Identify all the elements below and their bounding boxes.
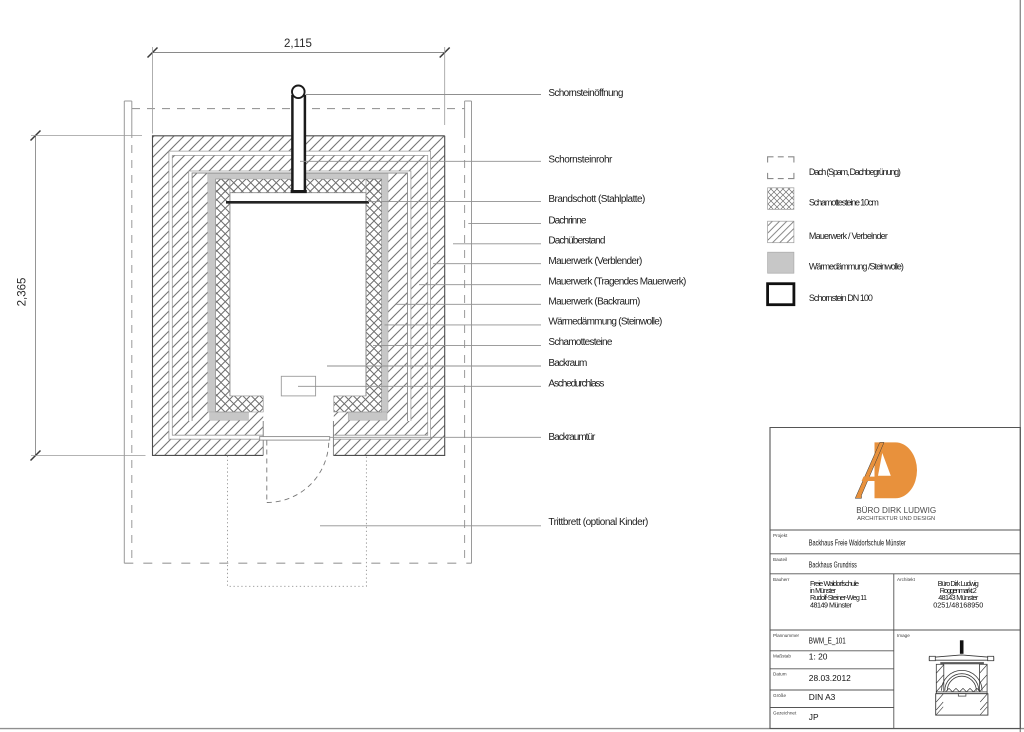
svg-text:Schornstein DN 100: Schornstein DN 100 — [809, 293, 873, 303]
svg-text:Image: Image — [897, 633, 910, 638]
svg-text:48149 Münster: 48149 Münster — [810, 600, 853, 609]
svg-text:2,115: 2,115 — [284, 38, 312, 50]
svg-text:Dachüberstand: Dachüberstand — [548, 236, 605, 247]
svg-text:Wärmedämmung (Steinwolle): Wärmedämmung (Steinwolle) — [548, 317, 662, 328]
svg-text:Datum: Datum — [773, 672, 787, 677]
svg-text:ARCHITEKTUR UND DESIGN: ARCHITEKTUR UND DESIGN — [857, 516, 935, 522]
svg-text:Gezeichnet: Gezeichnet — [773, 711, 797, 716]
svg-text:Größe: Größe — [773, 693, 786, 698]
svg-text:Schornsteinrohr: Schornsteinrohr — [548, 154, 613, 165]
svg-text:Plannummer: Plannummer — [773, 633, 800, 638]
svg-text:Bauherr: Bauherr — [773, 577, 790, 582]
svg-text:0251/48168950: 0251/48168950 — [933, 600, 983, 609]
svg-text:28.03.2012: 28.03.2012 — [809, 673, 851, 683]
svg-text:Aschedurchlass: Aschedurchlass — [548, 379, 604, 390]
svg-text:Mauerwerk (Verblender): Mauerwerk (Verblender) — [548, 256, 642, 267]
svg-text:Mauerwerk / Verbelnder: Mauerwerk / Verbelnder — [809, 231, 888, 241]
svg-text:Brandschott (Stahlplatte): Brandschott (Stahlplatte) — [548, 194, 645, 205]
svg-text:Schornsteinöffnung: Schornsteinöffnung — [548, 88, 623, 99]
svg-text:2,365: 2,365 — [17, 278, 29, 307]
svg-text:Maßstab: Maßstab — [773, 654, 791, 659]
svg-text:Mauerwerk (Tragendes Mauerwerk: Mauerwerk (Tragendes Mauerwerk) — [548, 277, 686, 288]
svg-text:Trittbrett (optional Kinder): Trittbrett (optional Kinder) — [548, 517, 648, 528]
svg-text:Backhaus Grundriss: Backhaus Grundriss — [809, 559, 857, 569]
svg-text:Projekt: Projekt — [773, 533, 788, 538]
svg-text:Dachrinne: Dachrinne — [548, 216, 586, 227]
svg-text:JP: JP — [809, 712, 819, 722]
svg-text:Schamottesteine: Schamottesteine — [548, 337, 612, 348]
svg-text:Backraumtür: Backraumtür — [548, 432, 596, 443]
svg-text:BÜRO DIRK LUDWIG: BÜRO DIRK LUDWIG — [856, 505, 936, 515]
svg-text:1: 20: 1: 20 — [809, 651, 828, 661]
svg-text:Schamottesteine 10cm: Schamottesteine 10cm — [809, 197, 879, 207]
svg-text:Mauerwerk (Backraum): Mauerwerk (Backraum) — [548, 296, 640, 307]
svg-text:Backhaus Freie Waldorfschule M: Backhaus Freie Waldorfschule Münster — [809, 538, 906, 548]
svg-text:Architekt: Architekt — [897, 577, 916, 582]
svg-text:Dach (Spam, Dachbegrünung): Dach (Spam, Dachbegrünung) — [809, 167, 901, 177]
svg-text:DIN A3: DIN A3 — [809, 692, 836, 702]
svg-text:BWM_E_101: BWM_E_101 — [809, 635, 846, 645]
svg-text:Wärmedämmung /Steinwolle): Wärmedämmung /Steinwolle) — [809, 262, 904, 272]
svg-text:Backraum: Backraum — [548, 358, 587, 369]
svg-text:Bauteil: Bauteil — [773, 557, 787, 562]
